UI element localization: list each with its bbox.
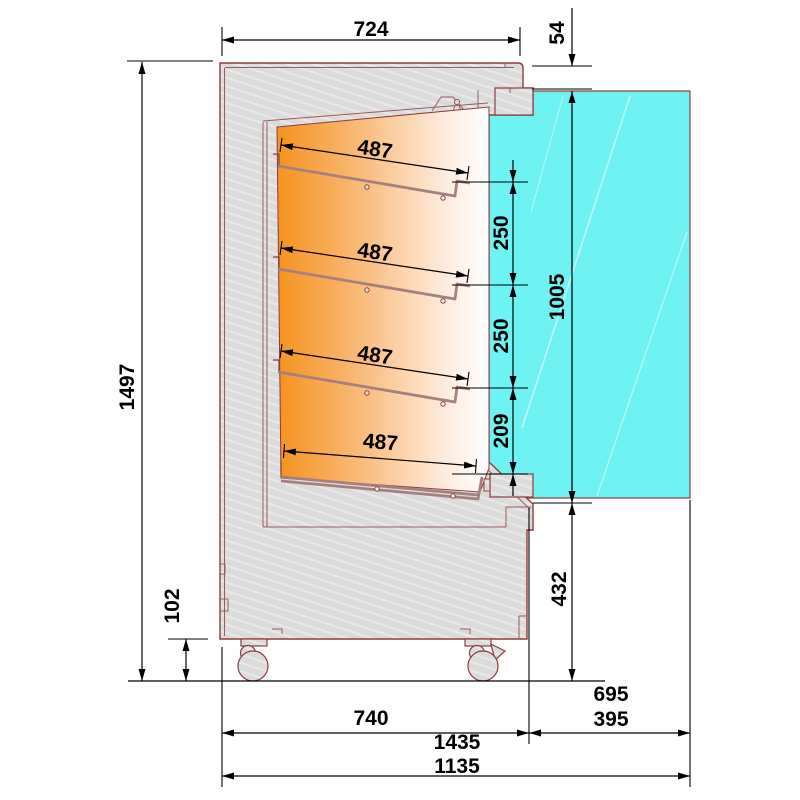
dim-total-height: 1497 bbox=[116, 61, 213, 681]
dim-label-caster-height: 102 bbox=[161, 588, 184, 623]
dim-label-shelf-depth-4: 487 bbox=[362, 430, 399, 456]
caster-right bbox=[465, 639, 505, 681]
dim-label-top-offset: 54 bbox=[546, 21, 569, 45]
technical-drawing-page: 724 54 1497 487 487 487 487 bbox=[0, 0, 800, 800]
cross-section-diagram: 724 54 1497 487 487 487 487 bbox=[0, 0, 800, 800]
dim-label-total-depth-open: 1435 bbox=[434, 731, 481, 754]
dim-label-spacing-2: 250 bbox=[490, 318, 513, 353]
dim-label-spacing-1: 250 bbox=[490, 215, 513, 250]
dim-below-door: 432 bbox=[548, 503, 572, 681]
caster-left bbox=[238, 639, 268, 681]
dim-label-base-depth: 740 bbox=[353, 707, 388, 730]
dim-top-offset: 54 bbox=[532, 8, 592, 89]
dim-label-spacing-3: 209 bbox=[490, 413, 513, 448]
dim-label-door-height: 1005 bbox=[546, 273, 569, 320]
door-top-bracket bbox=[495, 88, 533, 115]
dim-label-top-width: 724 bbox=[353, 18, 388, 41]
dim-caster-height: 102 bbox=[161, 588, 208, 681]
dim-label-below-door: 432 bbox=[548, 571, 571, 606]
door-bottom-bracket bbox=[484, 474, 533, 497]
dim-top-width: 724 bbox=[222, 18, 520, 56]
door-panel bbox=[487, 91, 690, 498]
dim-label-total-height: 1497 bbox=[116, 364, 139, 411]
dim-label-front-ext-open: 695 bbox=[593, 683, 628, 706]
dim-label-total-depth: 1135 bbox=[434, 755, 480, 778]
dim-label-front-ext: 395 bbox=[593, 708, 628, 731]
